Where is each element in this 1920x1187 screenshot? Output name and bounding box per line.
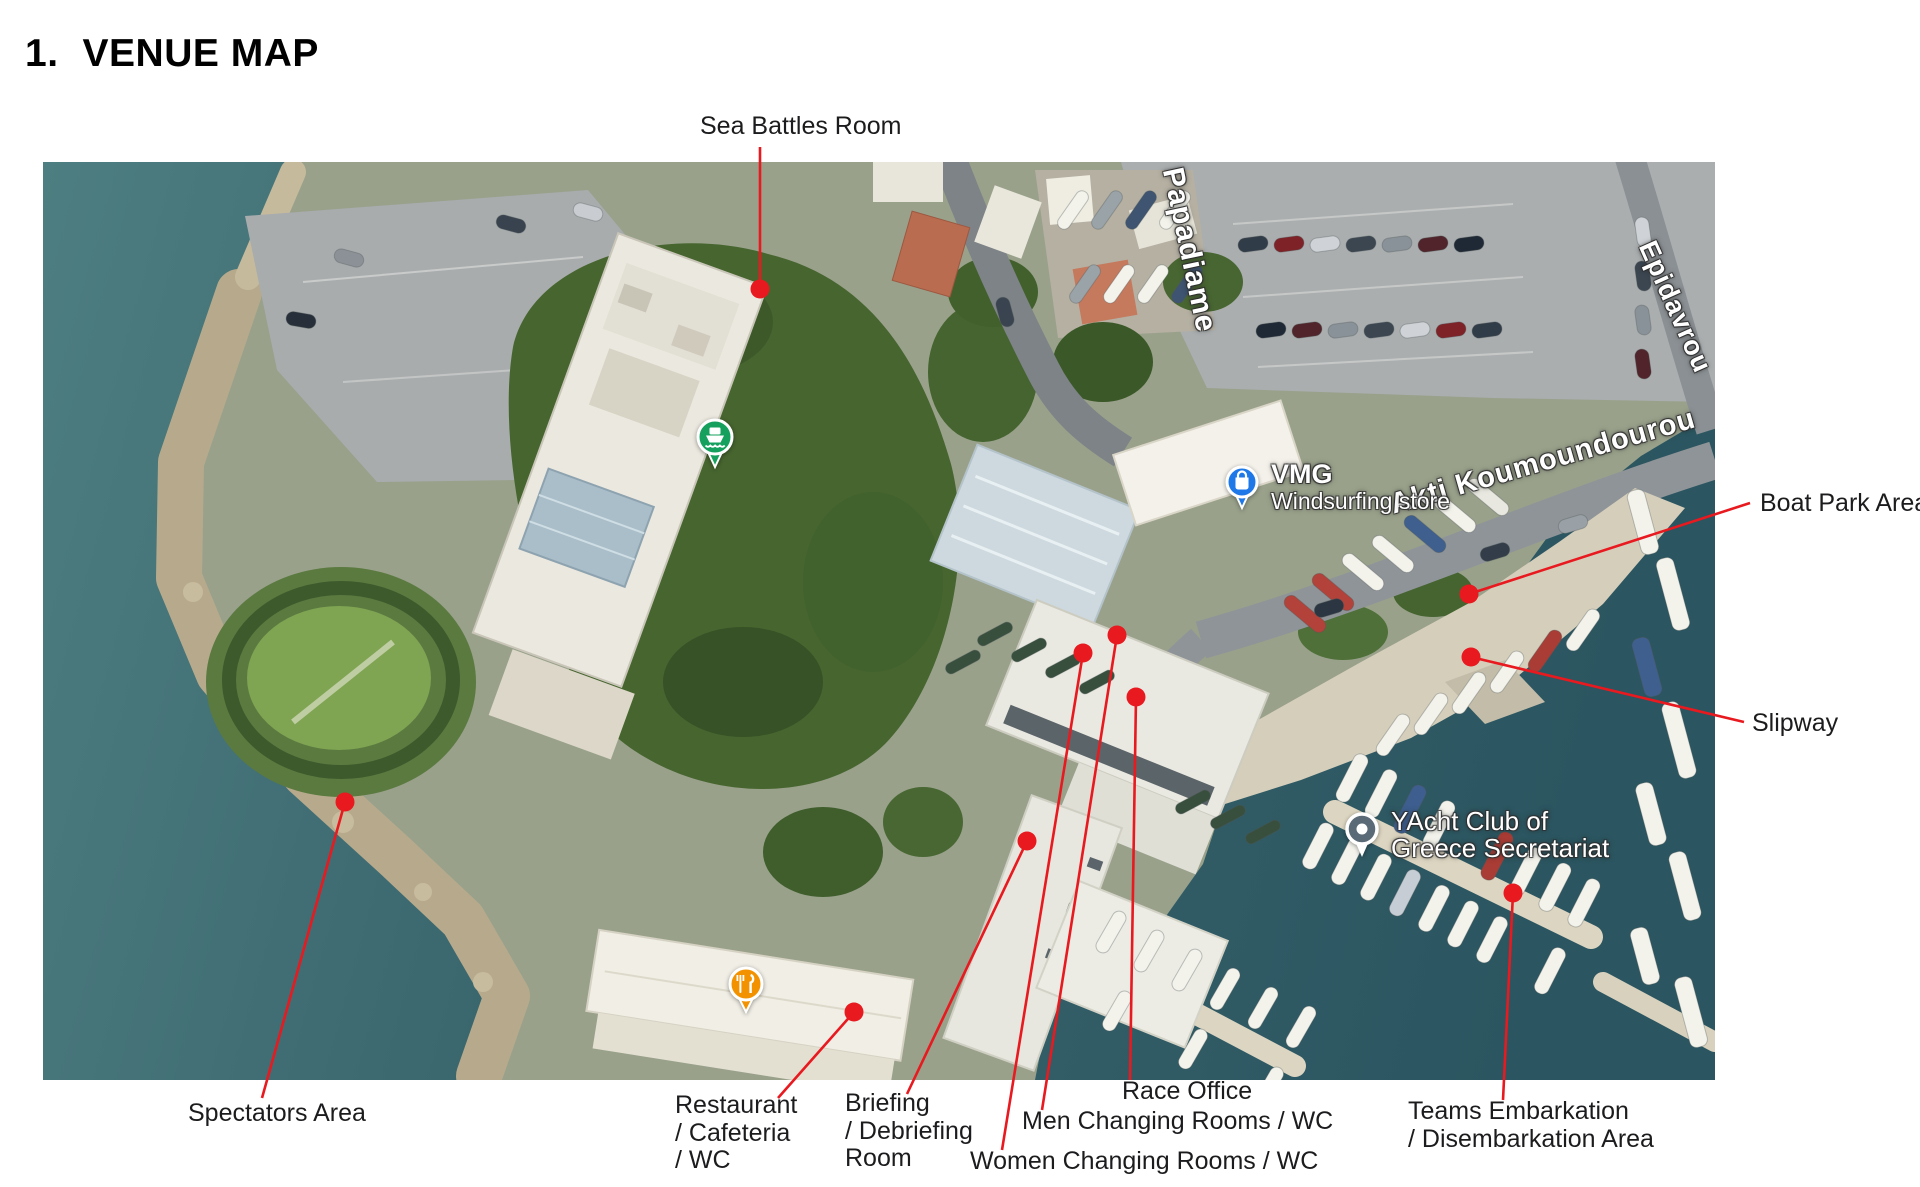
yacht-club-secretariat-label: YAcht Club ofGreece Secretariat (1391, 808, 1609, 862)
spectators-area-label: Spectators Area (188, 1100, 366, 1128)
women-changing-rooms-wc-label-line: Women Changing Rooms / WC (970, 1148, 1318, 1176)
yacht-club-secretariat-label-line: YAcht Club of (1391, 808, 1609, 835)
boat-park-area-label-line: Boat Park Area (1760, 490, 1920, 518)
vmg-windsurfing-store-label-line: Windsurfing store (1271, 488, 1450, 515)
teams-embarkation-disembarkation-label-line: / Disembarkation Area (1408, 1126, 1654, 1154)
page-title: 1. VENUE MAP (25, 32, 319, 76)
briefing-debriefing-room-label-line: / Debriefing (845, 1118, 973, 1146)
venue-map-page: { "page": { "heading_number": "1.", "hea… (0, 0, 1920, 1187)
race-office-label: Race Office (1122, 1078, 1252, 1106)
teams-embarkation-disembarkation-label: Teams Embarkation/ Disembarkation Area (1408, 1098, 1654, 1153)
vmg-windsurfing-store-label: VMGWindsurfing store (1271, 461, 1450, 515)
place-pin-icon (1340, 807, 1384, 863)
teams-embarkation-disembarkation-label-line: Teams Embarkation (1408, 1098, 1654, 1126)
sea-battles-room-label-line: Sea Battles Room (700, 113, 902, 141)
yacht-club-secretariat-label-line: Greece Secretariat (1391, 835, 1609, 862)
restaurant-pin-icon (722, 960, 770, 1018)
sea-battles-room-label: Sea Battles Room (700, 113, 902, 141)
briefing-debriefing-room-label-line: Briefing (845, 1090, 973, 1118)
ferry-pin-icon (690, 412, 740, 474)
aerial-photo (43, 162, 1715, 1080)
race-office-label-line: Race Office (1122, 1078, 1252, 1106)
page-title-number: 1. (25, 32, 59, 76)
women-changing-rooms-wc-label: Women Changing Rooms / WC (970, 1148, 1318, 1176)
briefing-debriefing-room-label-line: Room (845, 1145, 973, 1173)
briefing-debriefing-room-label: Briefing/ DebriefingRoom (845, 1090, 973, 1173)
slipway-label: Slipway (1752, 710, 1838, 738)
vmg-windsurfing-store-label-line: VMG (1271, 461, 1450, 488)
aerial-map: PapadiameEpidavrouAkti Koumoundourou VMG… (43, 162, 1715, 1080)
spectators-area-label-line: Spectators Area (188, 1100, 366, 1128)
restaurant-cafeteria-wc-label-line: / WC (675, 1147, 797, 1175)
men-changing-rooms-wc-label-line: Men Changing Rooms / WC (1022, 1108, 1333, 1136)
page-title-text: VENUE MAP (83, 32, 319, 76)
restaurant-cafeteria-wc-label: Restaurant/ Cafeteria/ WC (675, 1092, 797, 1175)
shopping-bag-pin-icon (1220, 460, 1264, 514)
slipway-label-line: Slipway (1752, 710, 1838, 738)
men-changing-rooms-wc-label: Men Changing Rooms / WC (1022, 1108, 1333, 1136)
restaurant-cafeteria-wc-label-line: Restaurant (675, 1092, 797, 1120)
boat-park-area-label: Boat Park Area (1760, 490, 1920, 518)
restaurant-cafeteria-wc-label-line: / Cafeteria (675, 1120, 797, 1148)
